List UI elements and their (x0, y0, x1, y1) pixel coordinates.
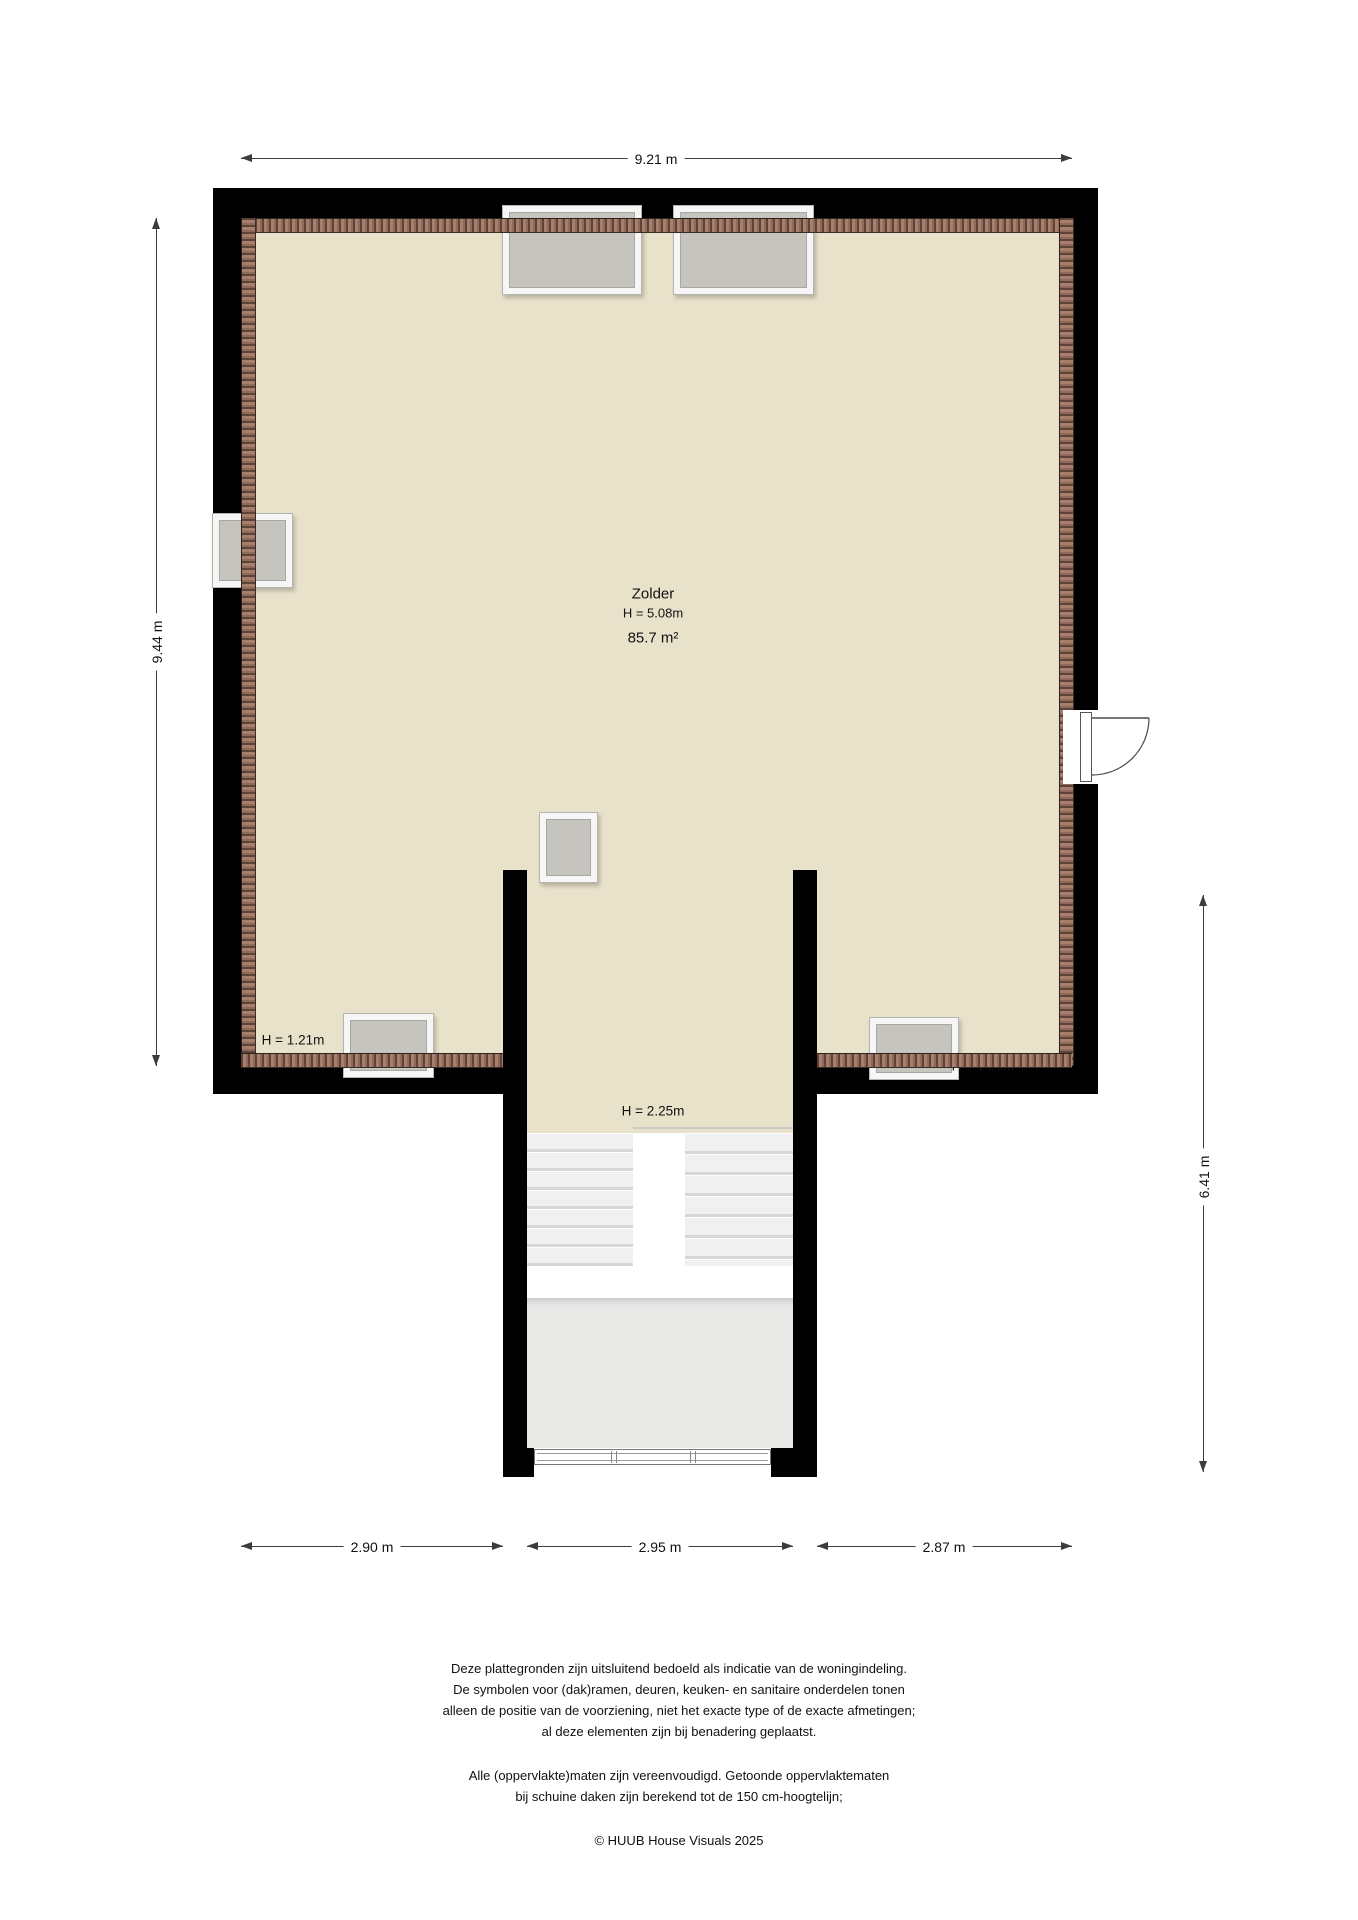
stairwell-floor (527, 1052, 793, 1133)
footer-line: Alle (oppervlakte)maten zijn vereenvoudi… (0, 1765, 1358, 1786)
front-window-glazing (537, 1453, 768, 1461)
arrow-left-icon (527, 1542, 538, 1550)
dimension-label-top: 9.21 m (628, 151, 685, 167)
arrow-down-icon (152, 1055, 160, 1066)
arrow-left-icon (241, 154, 252, 162)
wall-top (213, 188, 1098, 218)
wall-right (1072, 188, 1098, 1094)
dimension-label-left: 9.44 m (149, 614, 165, 671)
roof-tiles-right (1059, 218, 1074, 1066)
dimension-label-bottom-3: 2.87 m (916, 1539, 973, 1555)
front-window-mullion (690, 1451, 696, 1463)
skylight-window-bottom-right (869, 1017, 959, 1080)
footer-line: Deze plattegronden zijn uitsluitend bedo… (0, 1658, 1358, 1679)
height-label-bottom-left: H = 1.21m (262, 1033, 325, 1048)
footer-line: alleen de positie van de voorziening, ni… (0, 1700, 1358, 1721)
arrow-right-icon (782, 1542, 793, 1550)
room-area-label: 85.7 m² (628, 630, 679, 647)
dimension-label-right: 6.41 m (1196, 1149, 1212, 1206)
roof-tiles-left (241, 218, 256, 1066)
dimension-label-bottom-2: 2.95 m (632, 1539, 689, 1555)
wall-left (213, 188, 241, 1094)
arrow-up-icon (152, 218, 160, 229)
footer-line: De symbolen voor (dak)ramen, deuren, keu… (0, 1679, 1358, 1700)
skylight-window-bottom-left (343, 1013, 434, 1078)
height-label-stairwell: H = 2.25m (622, 1104, 685, 1119)
footer-copyright: © HUUB House Visuals 2025 (0, 1830, 1358, 1851)
footer-disclaimer-1: Deze plattegronden zijn uitsluitend bedo… (0, 1658, 1358, 1742)
skylight-window-middle (539, 812, 598, 883)
room-name-label: Zolder (632, 586, 675, 603)
stairs-landing (527, 1298, 793, 1448)
front-window (534, 1449, 771, 1465)
stairs-edge-line (633, 1127, 793, 1129)
roof-tiles-top (241, 218, 1072, 233)
arrow-left-icon (817, 1542, 828, 1550)
arrow-up-icon (1199, 895, 1207, 906)
stairs-flight-right (685, 1133, 793, 1266)
front-window-mullion (611, 1451, 617, 1463)
footer-line: al deze elementen zijn bij benadering ge… (0, 1721, 1358, 1742)
arrow-down-icon (1199, 1461, 1207, 1472)
room-height-label: H = 5.08m (623, 606, 683, 621)
roof-tiles-bottom-right (817, 1053, 1072, 1068)
arrow-right-icon (492, 1542, 503, 1550)
stairs-void (527, 1266, 793, 1298)
arrow-right-icon (1061, 1542, 1072, 1550)
stairwell-wall-left (503, 870, 527, 1477)
floorplan-canvas: Zolder H = 5.08m 85.7 m² H = 1.21m H = 1… (0, 0, 1358, 1920)
arrow-left-icon (241, 1542, 252, 1550)
dimension-label-bottom-1: 2.90 m (344, 1539, 401, 1555)
window-pane (546, 819, 591, 876)
roof-tiles-bottom-left (241, 1053, 503, 1068)
arrow-right-icon (1061, 154, 1072, 162)
door-swing-icon (1060, 700, 1190, 800)
footer-line: bij schuine daken zijn berekend tot de 1… (0, 1786, 1358, 1807)
front-window-sill (534, 1465, 771, 1477)
stairs-flight-left (527, 1133, 633, 1266)
footer-disclaimer-2: Alle (oppervlakte)maten zijn vereenvoudi… (0, 1765, 1358, 1807)
stairwell-wall-right (793, 870, 817, 1477)
